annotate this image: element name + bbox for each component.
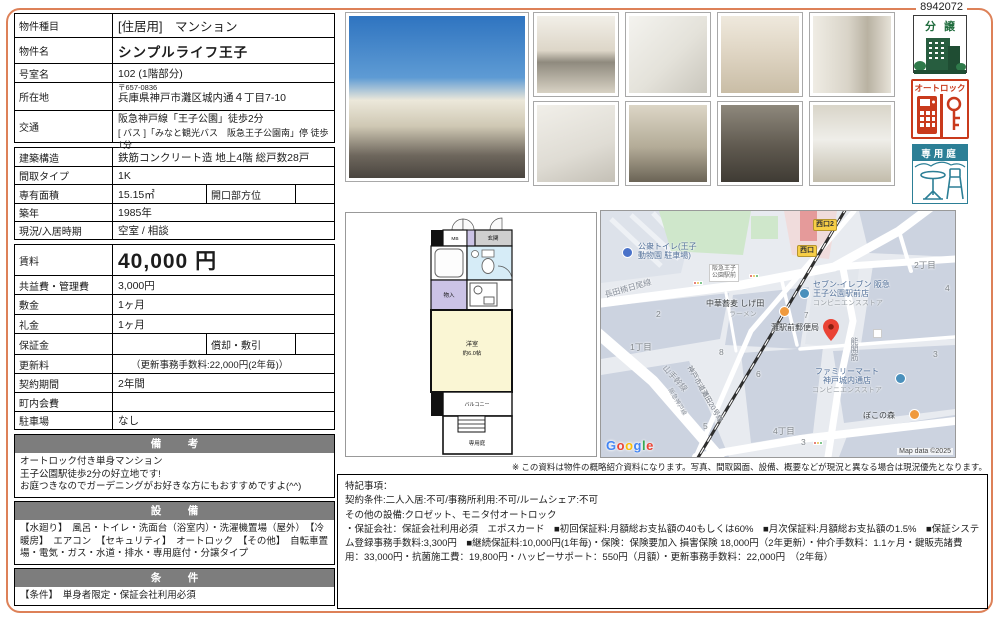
photo-bathroom [717,12,803,97]
familymart-line1: ファミリーマート [815,367,879,376]
row-type-label: 物件種目 [15,14,113,37]
photo-notice-board [809,101,895,186]
photo-entrance-lobby [625,101,711,186]
row-status-value: 空室 / 相談 [113,222,334,239]
notes-other-equipment: その他の設備:クロゼット、モニタ付オートロック [345,509,980,523]
row-deposit-value: 1ヶ月 [113,295,334,314]
row-term: 契約期間 2年間 [15,374,334,393]
floorplan-entrance-label: 玄関 [487,234,499,242]
badge-bunjo-label: 分譲 [914,18,966,34]
floorplan-mb-label: MB [451,236,458,242]
map-label-ramen: 中華蕎麦 しげ田 [706,299,764,308]
public-toilet-icon [622,247,633,258]
row-area: 専有面積 15.15㎡ 開口部方位 [15,185,334,204]
row-layout-label: 間取タイプ [15,167,113,184]
row-address-value: 〒657-0836 兵庫県神戸市灘区城内通４丁目7-10 [113,83,334,110]
setsubi-header: 設 備 [15,502,334,520]
map-busstop-box: 阪急王子 公園駅前 [709,264,739,282]
row-area-value: 15.15㎡ [113,185,206,203]
row-structure-label: 建築構造 [15,148,113,166]
row-room-value: 102 (1階部分) [113,64,334,82]
map-label-4chome: 4丁目 [773,425,795,437]
row-room-label: 号室名 [15,64,113,82]
map-label-nokaku-road: 能閣筋 [849,337,860,361]
row-renewal-value: （更新事務手数料:22,000円(2年毎)） [113,355,334,373]
map-pin-icon [823,319,839,341]
building-exterior-image [349,16,525,178]
map-number-2: 2 [656,309,661,319]
map-label-familymart: ファミリーマート 神戸城内通店 コンビニエンスストア [801,367,893,395]
busstop-line1: 阪急王子 [712,266,736,272]
bathroom-image [721,16,799,93]
biko-line-2: 王子公園駅徒歩2分の好立地です! [20,469,329,482]
map-exit-chip: 西口 [797,245,817,257]
row-layout-value: 1K [113,167,334,184]
photo-building-exterior [345,12,529,182]
row-built-value: 1985年 [113,204,334,221]
badge-autolock-label: オートロック [913,82,967,94]
map-label-toilet: 公衆トイレ(王子 動物園 駐車場) [638,242,697,260]
map-number-3b: 3 [933,349,938,359]
map-exit2-chip: 西口2 [813,219,837,231]
row-address-label: 所在地 [15,83,113,110]
row-layout: 間取タイプ 1K [15,167,334,185]
notice-board-image [813,105,891,182]
setsubi-text: 【水廻り】 風呂・トイレ・洗面台（浴室内）・洗濯機置場（屋外） 【冷暖房】 エア… [15,520,334,564]
familymart-line2: 神戸城内通店 [823,376,871,385]
location-map: 公衆トイレ(王子 動物園 駐車場) 長田楠日尾線 阪急王子 公園駅前 西口2 西… [600,210,956,458]
row-term-value: 2年間 [113,374,334,392]
toilet-line1: 公衆トイレ(王子 [638,242,697,251]
row-rent: 賃料 40,000 円 [15,245,334,276]
floorplan-garden-label: 専用庭 [469,439,486,447]
row-access-value: 阪急神戸線「王子公園」徒歩2分 [ バス ]「みなと観光バス 阪急王子公園南」停… [113,111,334,142]
traffic-light-icon [749,274,759,278]
joken-header: 条 件 [15,569,334,587]
kitchen-image [537,16,615,93]
postal-code: 〒657-0836 [118,84,329,92]
traffic-light-icon [693,281,703,285]
google-logo: Google [606,438,654,453]
row-structure: 建築構造 鉄筋コンクリート造 地上4階 総戸数28戸 [15,148,334,167]
floorplan-room-size: 約6.0帖 [463,349,482,357]
map-attribution: Map data ©2025 [897,448,953,455]
row-amortization-label: 償却・敷引 [206,334,296,354]
photo-entrance-door [809,12,895,97]
seven-eleven-icon [799,288,810,299]
rent-amount: 40,000 円 [113,245,334,275]
row-deposit: 敷金 1ヶ月 [15,295,334,315]
ramen-icon [779,306,790,317]
row-renewal: 更新料 （更新事務手数料:22,000円(2年毎)） [15,355,334,374]
badge-garden-label: 専用庭 [913,145,967,161]
row-built-label: 築年 [15,204,113,221]
row-type-value: [住居用] マンション [113,14,334,37]
table-building: 建築構造 鉄筋コンクリート造 地上4階 総戸数28戸 間取タイプ 1K 専有面積… [14,147,335,240]
row-name: 物件名 シンプルライフ王子 [15,38,334,64]
busstop-line2: 公園駅前 [712,273,736,279]
intercom-monitor-image [537,105,615,182]
map-label-2chome: 2丁目 [914,259,936,271]
biko-line-1: オートロック付き単身マンション [20,456,329,469]
access-train: 阪急神戸線「王子公園」徒歩2分 [118,113,329,127]
familymart-icon [895,373,906,384]
map-label-pokonomori: ぼこの森 [863,411,895,420]
familymart-subtext: コンビニエンスストア [812,387,882,394]
row-rent-label: 賃料 [15,245,113,275]
photo-kitchen [533,12,619,97]
photo-mailboxes [717,101,803,186]
row-keymoney: 礼金 1ヶ月 [15,315,334,334]
ramen-subtext: ラーメン [729,309,757,319]
property-sheet: 8942072 物件種目 [住居用] マンション 物件名 シンプルライフ王子 号… [0,0,999,617]
building-icon [914,34,966,74]
row-access-label: 交通 [15,111,113,142]
entrance-lobby-image [629,105,707,182]
seven-line2: 王子公園駅前店 [813,289,869,298]
row-guarantee-label: 保証金 [15,334,113,354]
table-cost: 賃料 40,000 円 共益費・管理費 3,000円 敷金 1ヶ月 礼金 1ヶ月… [14,244,335,430]
map-number-5: 5 [703,421,708,431]
traffic-light-icon [813,441,823,445]
serial-number: 8942072 [916,1,967,13]
notes-guarantee-details: ・保証会社：保証会社利用必須 エポスカード ■初回保証料:月額総お支払額の40も… [345,523,980,566]
small-transit-icon [873,329,882,338]
row-guarantee-value [113,334,206,354]
biko-text: オートロック付き単身マンション 王子公園駅徒歩2分の好立地です! お庭つきなので… [15,453,334,497]
address: 兵庫県神戸市灘区城内通４丁目7-10 [118,92,329,105]
row-built: 築年 1985年 [15,204,334,222]
map-label-postoffice: 灘駅前郵便局 [771,323,819,332]
row-parking-label: 駐車場 [15,412,113,429]
pokonomori-icon [909,409,920,420]
autolock-icon [913,94,967,138]
floorplan-room-name: 洋室 [466,340,478,348]
seven-subtext: コンビニエンスストア [813,300,883,307]
row-keymoney-value: 1ヶ月 [113,315,334,333]
map-number-4: 4 [945,283,950,293]
row-association-value [113,393,334,411]
row-fee-value: 3,000円 [113,276,334,294]
toilet-line2: 動物園 駐車場) [638,251,691,260]
badge-bunjo: 分譲 [913,15,967,73]
biko-line-3: お庭つきなのでガーデニングがお好きな方にもおすすめですよ(^^) [20,481,329,494]
row-structure-value: 鉄筋コンクリート造 地上4階 総戸数28戸 [113,148,334,166]
row-fee: 共益費・管理費 3,000円 [15,276,334,295]
row-opening-label: 開口部方位 [206,185,296,203]
property-name: シンプルライフ王子 [113,38,334,63]
row-parking-value: なし [113,412,334,429]
row-room: 号室名 102 (1階部分) [15,64,334,83]
row-opening-value [296,185,366,203]
biko-header: 備 考 [15,435,334,453]
photo-intercom-monitor [533,101,619,186]
floorplan-closet-label: 物入 [443,291,455,299]
row-fee-label: 共益費・管理費 [15,276,113,294]
seven-line1: セブン-イレブン 阪急 [813,280,890,289]
notes-title: 特記事項： [345,480,980,494]
row-area-label: 専有面積 [15,185,113,203]
notes-contract-conditions: 契約条件:二人入居:不可/事務所利用:不可/ルームシェア:不可 [345,494,980,508]
map-number-3a: 3 [801,437,806,447]
row-renewal-label: 更新料 [15,355,113,373]
map-number-8: 8 [719,347,724,357]
floorplan-drawing: MB 玄関 物入 洋室 約6.0帖 [430,216,514,456]
photo-control-panel [625,12,711,97]
row-name-label: 物件名 [15,38,113,63]
row-status-label: 現況/入居時期 [15,222,113,239]
row-keymoney-label: 礼金 [15,315,113,333]
section-biko: 備 考 オートロック付き単身マンション 王子公園駅徒歩2分の好立地です! お庭つ… [14,434,335,498]
garden-icon [913,161,966,203]
map-label-seven: セブン-イレブン 阪急 王子公園駅前店 コンビニエンスストア [813,280,890,308]
floorplan: MB 玄関 物入 洋室 約6.0帖 [345,212,597,457]
row-term-label: 契約期間 [15,374,113,392]
row-guarantee: 保証金 償却・敷引 [15,334,334,355]
floorplan-balcony-label: バルコニー [465,402,490,408]
badge-autolock: オートロック [911,79,969,139]
disclaimer-text: ※ この資料は物件の概略紹介資料になります。写真、間取図面、設備、概要などが現況… [512,461,987,473]
section-joken: 条 件 【条件】 単身者限定・保証会社利用必須 [14,568,335,607]
table-basic: 物件種目 [住居用] マンション 物件名 シンプルライフ王子 号室名 102 (… [14,13,335,143]
row-deposit-label: 敷金 [15,295,113,314]
map-number-6: 6 [756,369,761,379]
special-notes-box: 特記事項： 契約条件:二人入居:不可/事務所利用:不可/ルームシェア:不可 その… [337,474,988,609]
row-association-label: 町内会費 [15,393,113,411]
property-detail-table: 物件種目 [住居用] マンション 物件名 シンプルライフ王子 号室名 102 (… [14,13,335,606]
row-type: 物件種目 [住居用] マンション [15,14,334,38]
map-label-1chome: 1丁目 [630,341,652,353]
control-panel-image [629,16,707,93]
joken-text: 【条件】 単身者限定・保証会社利用必須 [15,587,334,606]
row-access: 交通 阪急神戸線「王子公園」徒歩2分 [ バス ]「みなと観光バス 阪急王子公園… [15,111,334,142]
row-parking: 駐車場 なし [15,412,334,429]
mailboxes-image [721,105,799,182]
row-status: 現況/入居時期 空室 / 相談 [15,222,334,239]
row-association: 町内会費 [15,393,334,412]
entrance-door-image [813,16,891,93]
badge-garden: 専用庭 [912,144,968,204]
map-number-7: 7 [804,311,808,320]
section-setsubi: 設 備 【水廻り】 風呂・トイレ・洗面台（浴室内）・洗濯機置場（屋外） 【冷暖房… [14,501,335,565]
row-address: 所在地 〒657-0836 兵庫県神戸市灘区城内通４丁目7-10 [15,83,334,111]
